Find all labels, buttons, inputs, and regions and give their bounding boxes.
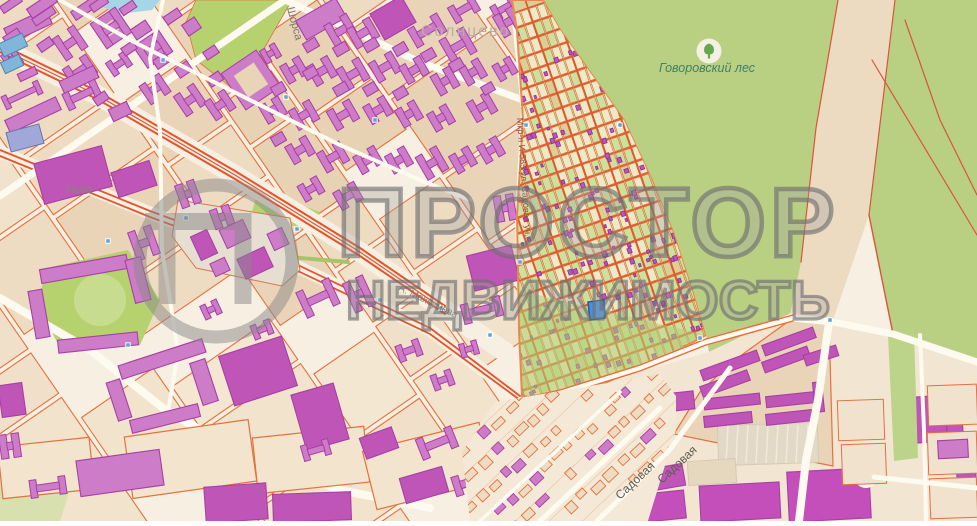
- svg-text:Небо: Небо: [66, 184, 92, 196]
- svg-text:Говоровский лес: Говоровский лес: [659, 61, 756, 75]
- svg-text:Солнцево: Солнцево: [421, 23, 510, 40]
- svg-text:НЕДВИЖИМОСТЬ: НЕДВИЖИМОСТЬ: [346, 269, 830, 331]
- svg-text:ПРОСТОР: ПРОСТОР: [337, 168, 838, 277]
